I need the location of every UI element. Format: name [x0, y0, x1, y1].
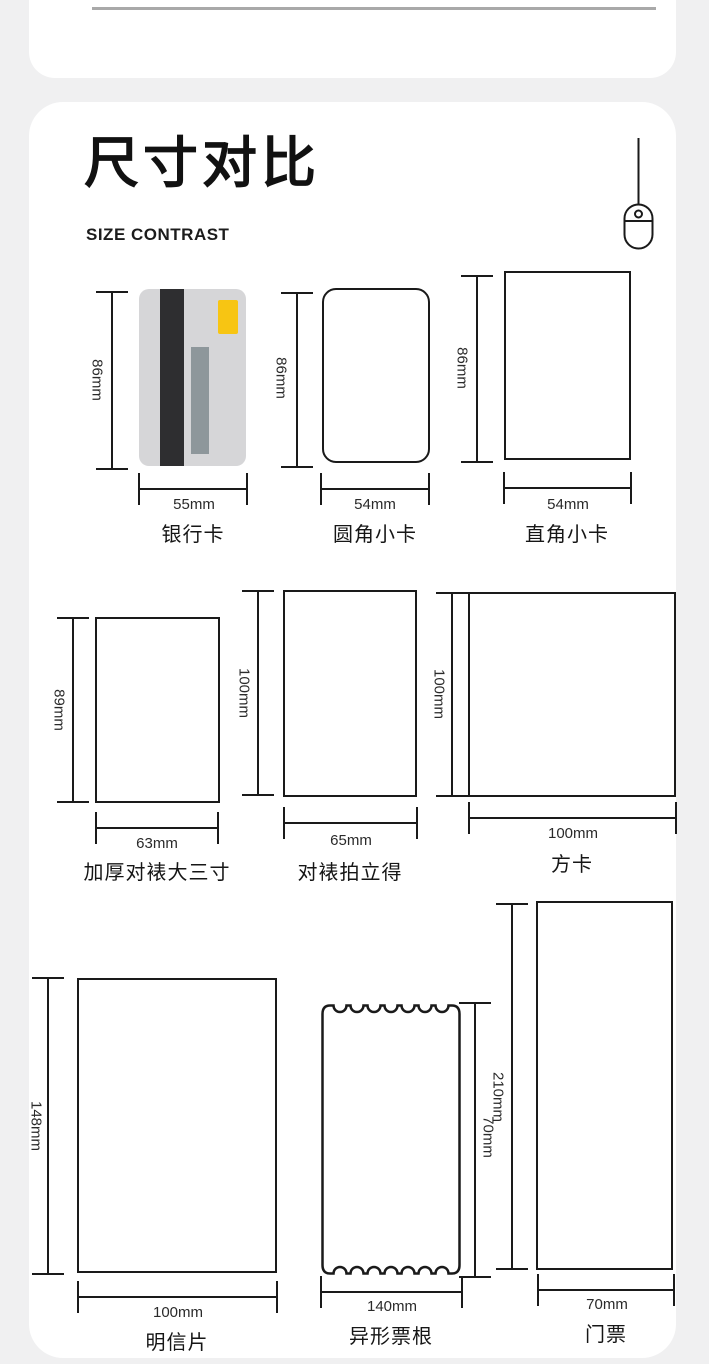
- item-name-bank-card: 银行卡: [162, 518, 225, 547]
- item-name-ticket-stub: 异形票根: [349, 1320, 433, 1349]
- height-dim-line-ticket-stub: [474, 1002, 476, 1278]
- item-name-ticket: 门票: [585, 1318, 627, 1347]
- size-contrast-infographic: 尺寸对比 SIZE CONTRAST 86mm 55mm 银行卡 86mm 54…: [0, 0, 709, 1364]
- height-dim-line-square-corner-card: [476, 275, 478, 463]
- height-dim-line-laminated-3inch: [72, 617, 74, 803]
- width-label-square-corner-card: 54mm: [547, 496, 589, 513]
- width-label-bank-card: 55mm: [173, 496, 215, 513]
- section-divider-line: [92, 7, 656, 10]
- width-dim-line-postcard: [77, 1296, 278, 1298]
- laminated-3inch-shape: [95, 617, 220, 803]
- height-dim-line-bank-card: [111, 291, 113, 470]
- width-dim-line-rounded-card: [320, 488, 430, 490]
- page-title: 尺寸对比: [84, 130, 320, 196]
- height-label-square-corner-card: 86mm: [454, 347, 471, 389]
- width-dim-line-ticket-stub: [320, 1291, 463, 1293]
- height-label-square-card: 100mm: [431, 669, 448, 719]
- ticket-shape: [536, 901, 673, 1270]
- width-dim-line-ticket: [537, 1289, 675, 1291]
- width-label-polaroid: 65mm: [330, 832, 372, 849]
- item-name-square-card: 方卡: [551, 848, 593, 877]
- width-label-ticket-stub: 140mm: [367, 1298, 417, 1315]
- page-subtitle: SIZE CONTRAST: [86, 225, 229, 245]
- bank-card-illustration: [139, 289, 246, 466]
- height-label-rounded-card: 86mm: [273, 357, 290, 399]
- height-dim-line-square-card: [451, 592, 453, 797]
- square-corner-card-shape: [504, 271, 631, 460]
- height-label-ticket: 210mm: [490, 1072, 507, 1122]
- bank-card-magnetic-stripe: [160, 289, 184, 466]
- ticket-stub-shape: [321, 1001, 461, 1278]
- bank-card-signature-stripe: [191, 347, 209, 454]
- height-dim-line-postcard: [47, 977, 49, 1275]
- previous-section-panel: [29, 0, 676, 78]
- height-label-polaroid: 100mm: [236, 668, 253, 718]
- width-dim-line-square-corner-card: [503, 487, 632, 489]
- width-label-postcard: 100mm: [153, 1304, 203, 1321]
- height-label-laminated-3inch: 89mm: [51, 689, 68, 731]
- width-dim-line-polaroid: [283, 822, 418, 824]
- item-name-square-corner-card: 直角小卡: [525, 518, 609, 547]
- postcard-shape: [77, 978, 277, 1273]
- height-dim-line-polaroid: [257, 590, 259, 796]
- height-label-postcard: 148mm: [28, 1101, 45, 1151]
- height-label-ticket-stub: 70mm: [480, 1116, 497, 1158]
- width-dim-line-laminated-3inch: [95, 827, 219, 829]
- width-label-square-card: 100mm: [548, 825, 598, 842]
- width-dim-line-bank-card: [138, 488, 248, 490]
- width-label-rounded-card: 54mm: [354, 496, 396, 513]
- item-name-rounded-card: 圆角小卡: [333, 518, 417, 547]
- polaroid-shape: [283, 590, 417, 797]
- item-name-polaroid: 对裱拍立得: [298, 856, 403, 885]
- item-name-laminated-3inch: 加厚对裱大三寸: [84, 856, 231, 885]
- square-card-shape: [468, 592, 676, 797]
- item-name-postcard: 明信片: [146, 1326, 209, 1355]
- width-label-laminated-3inch: 63mm: [136, 835, 178, 852]
- bank-card-chip: [218, 300, 238, 334]
- rounded-card-shape: [322, 288, 430, 463]
- width-dim-line-square-card: [468, 817, 677, 819]
- width-label-ticket: 70mm: [586, 1296, 628, 1313]
- height-dim-line-ticket: [511, 903, 513, 1270]
- mouse-icon: [623, 138, 655, 250]
- height-dim-line-rounded-card: [296, 292, 298, 468]
- height-label-bank-card: 86mm: [89, 359, 106, 401]
